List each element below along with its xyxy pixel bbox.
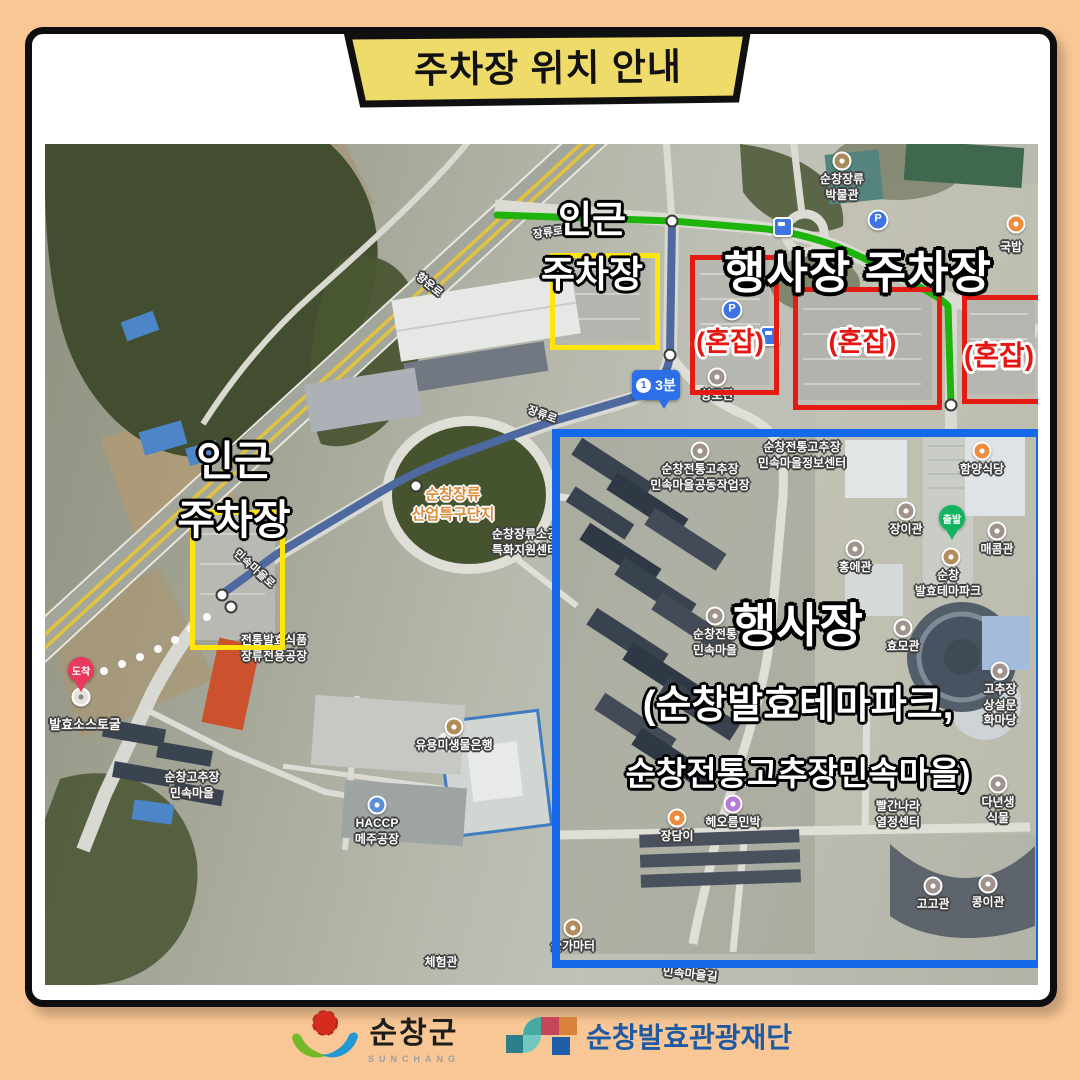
sunchang-county-emblem-icon <box>288 1008 360 1064</box>
nearby-left-line1: 인근 <box>153 432 315 491</box>
foundation-emblem-icon <box>506 1016 578 1056</box>
map-label: 향운로 <box>413 270 445 300</box>
map-label: 체험관 <box>424 955 457 971</box>
congested-label-2: (혼잡) <box>793 320 932 359</box>
map-label: 장류로 <box>525 403 558 427</box>
foundation-name: 순창발효관광재단 <box>586 1016 792 1056</box>
foundation-logo: 순창발효관광재단 <box>506 1016 792 1056</box>
page-title: 주차장 위치 안내 <box>414 46 682 90</box>
parking-marker-icon: P <box>868 210 889 231</box>
sunchang-county-logo: 순창군 SUNCHANG <box>288 1008 460 1064</box>
content-card: 순창장류 박물관국밥향토관순창전통고추장 민속마을정보센터순창전통고추장 민속마… <box>25 27 1057 1007</box>
map-label: 순창장류 박물관 <box>820 172 864 203</box>
nearby-parking-label-left: 인근 주차장 <box>153 432 315 551</box>
sunchang-county-text: 순창군 SUNCHANG <box>368 1008 460 1064</box>
route-duration-label: 3분 <box>655 375 676 395</box>
footer: 순창군 SUNCHANG 순창발효관광재단 <box>0 1008 1080 1064</box>
event-parking-title: 행사장 주차장 <box>685 236 1031 301</box>
satellite-map: 순창장류 박물관국밥향토관순창전통고추장 민속마을정보센터순창전통고추장 민속마… <box>45 144 1038 985</box>
departure-pin-label: 출발 <box>943 511 961 526</box>
venue-box: 행사장 (순창발효테마파크, 순창전통고추장민속마을) <box>552 429 1038 968</box>
poster: 순창장류 박물관국밥향토관순창전통고추장 민속마을정보센터순창전통고추장 민속마… <box>0 0 1080 1080</box>
museum-marker-icon <box>833 152 852 171</box>
congested-label-1: (혼잡) <box>690 320 770 359</box>
orange-marker-icon <box>1007 215 1026 234</box>
route-duration-badge: 1 3분 <box>632 370 680 400</box>
map-label: 유용미생물은행 <box>415 738 492 754</box>
route-step-icon: 1 <box>636 378 651 393</box>
blue-marker-icon <box>368 796 387 815</box>
title-banner: 주차장 위치 안내 <box>0 0 1080 125</box>
bus-marker-icon <box>773 217 793 237</box>
arrival-pin: 도착 <box>68 657 94 683</box>
sunchang-county-latin: SUNCHANG <box>368 1054 460 1064</box>
sunchang-county-name: 순창군 <box>370 1008 459 1052</box>
nearby-left-line2: 주차장 <box>153 491 315 550</box>
departure-pin: 출발 <box>939 505 965 531</box>
nearby-parking-label-top: 인근 주차장 <box>517 193 667 303</box>
map-label: 순창고추장 민속마을 <box>164 770 219 801</box>
nearby-top-line1: 인근 <box>517 193 667 248</box>
map-label: 발효소스토굴 <box>49 717 121 734</box>
map-label: 순창장류소공 특화지원센터 <box>492 527 558 558</box>
venue-subtitle-2: 순창전통고추장민속마을) <box>560 747 1036 795</box>
venue-subtitle-1: (순창발효테마파크, <box>560 674 1036 730</box>
map-label: HACCP 메주공장 <box>355 816 399 847</box>
congested-label-3: (혼잡) <box>957 334 1038 374</box>
map-label: 순창장류 산업특구단지 <box>412 485 495 524</box>
tan-marker-icon <box>445 718 464 737</box>
venue-title: 행사장 <box>560 587 1036 656</box>
nearby-top-line2: 주차장 <box>517 248 667 303</box>
arrival-pin-label: 도착 <box>72 663 90 678</box>
